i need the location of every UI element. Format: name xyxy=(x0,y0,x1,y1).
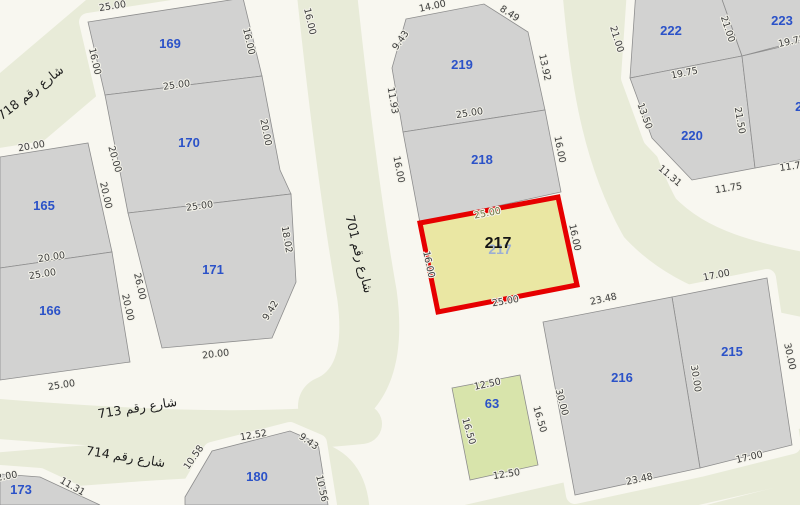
parcel-number-218: 218 xyxy=(471,152,493,167)
parcel-number-173: 173 xyxy=(10,482,32,497)
cadastral-map-view: 25.0016.0016.0025.0020.0020.0025.0018.02… xyxy=(0,0,800,505)
map-canvas: 25.0016.0016.0025.0020.0020.0025.0018.02… xyxy=(0,0,800,505)
parcel-number-165: 165 xyxy=(33,198,55,213)
parcel-number-169: 169 xyxy=(159,36,181,51)
parcel-number-180: 180 xyxy=(246,469,268,484)
parcel-number-219: 219 xyxy=(451,57,473,72)
parcel-number-171: 171 xyxy=(202,262,224,277)
parcel-number-63: 63 xyxy=(485,396,499,411)
parcel-number-222: 222 xyxy=(660,23,682,38)
parcel-number-220: 220 xyxy=(681,128,703,143)
parcel-number-221: 221 xyxy=(795,99,800,114)
parcel-number-216: 216 xyxy=(611,370,633,385)
parcel-number-217: 217 xyxy=(485,235,512,252)
parcel-number-166: 166 xyxy=(39,303,61,318)
parcel-166[interactable] xyxy=(0,252,130,380)
parcel-number-215: 215 xyxy=(721,344,743,359)
parcel-number-223: 223 xyxy=(771,13,793,28)
parcel-number-170: 170 xyxy=(178,135,200,150)
street-713 xyxy=(0,417,362,430)
